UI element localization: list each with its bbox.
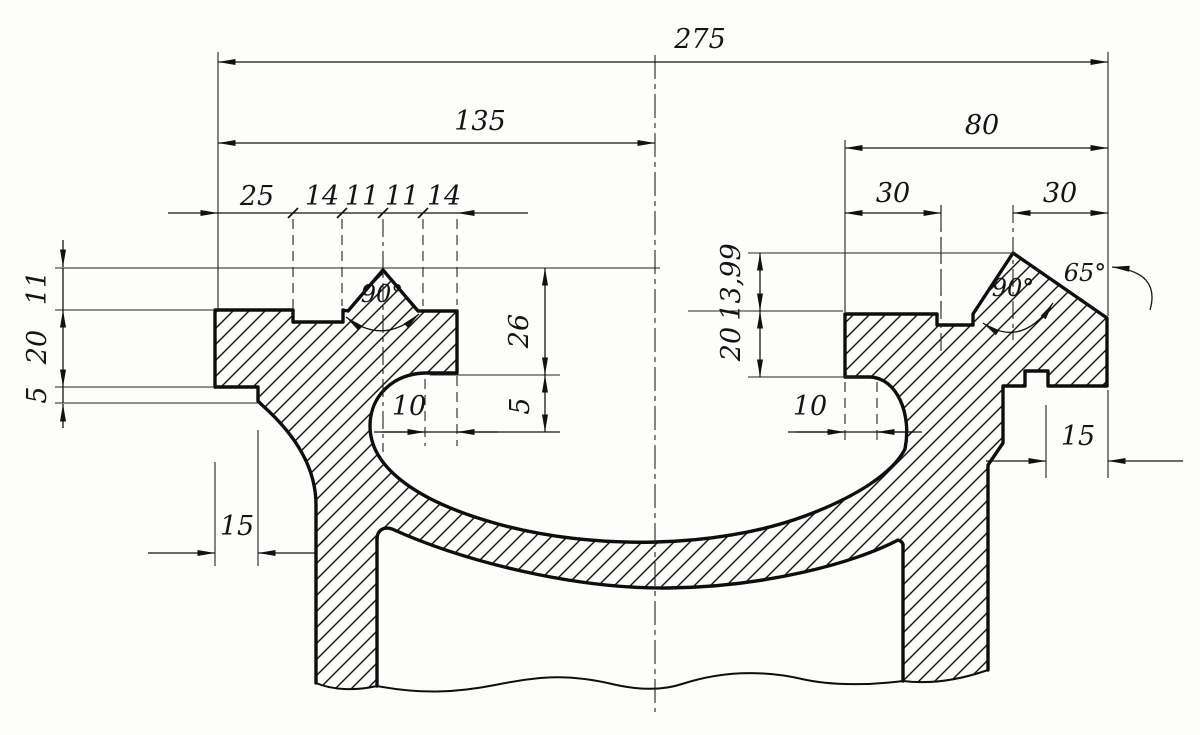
piston-section-drawing: 275 135 80 25 14 11 11 14 30 30 11 20 5 … — [0, 0, 1200, 735]
angle-leader-65 — [1112, 267, 1152, 310]
dim-left-height-20: 20 — [22, 330, 53, 365]
dim-right-height-1399: 13,99 — [716, 243, 747, 320]
dim-groove-offset-11b: 11 — [385, 181, 419, 212]
dim-right-offset-30b: 30 — [1043, 178, 1077, 209]
dim-left-height-5: 5 — [22, 386, 53, 403]
dim-right-section-width: 80 — [965, 110, 999, 141]
dim-right-height-20: 20 — [716, 327, 747, 362]
dim-groove-angle-left: 90° — [361, 280, 404, 308]
dim-bowl-depth-26: 26 — [504, 314, 535, 349]
dim-groove-offset-11a: 11 — [345, 181, 379, 212]
dim-left-height-11: 11 — [22, 271, 53, 305]
dim-overall-width: 275 — [673, 24, 726, 55]
dim-bowl-step-5: 5 — [505, 397, 536, 414]
dim-chamfer-angle: 65° — [1064, 259, 1107, 287]
dim-left-section-width: 135 — [454, 106, 506, 137]
dim-groove-offset-25: 25 — [239, 181, 274, 212]
engineering-drawing-sheet: 275 135 80 25 14 11 11 14 30 30 11 20 5 … — [0, 0, 1200, 735]
dim-skirt-step-right-15: 15 — [1061, 421, 1095, 452]
dim-undercut-left-10: 10 — [392, 391, 426, 422]
dim-undercut-right-10: 10 — [793, 391, 827, 422]
dim-groove-offset-14a: 14 — [305, 181, 339, 212]
dim-groove-angle-right: 90° — [992, 274, 1035, 302]
dim-right-offset-30a: 30 — [876, 178, 910, 209]
dim-skirt-step-left-15: 15 — [220, 511, 254, 542]
dim-groove-offset-14b: 14 — [427, 181, 461, 212]
break-wavy-line — [316, 670, 988, 692]
